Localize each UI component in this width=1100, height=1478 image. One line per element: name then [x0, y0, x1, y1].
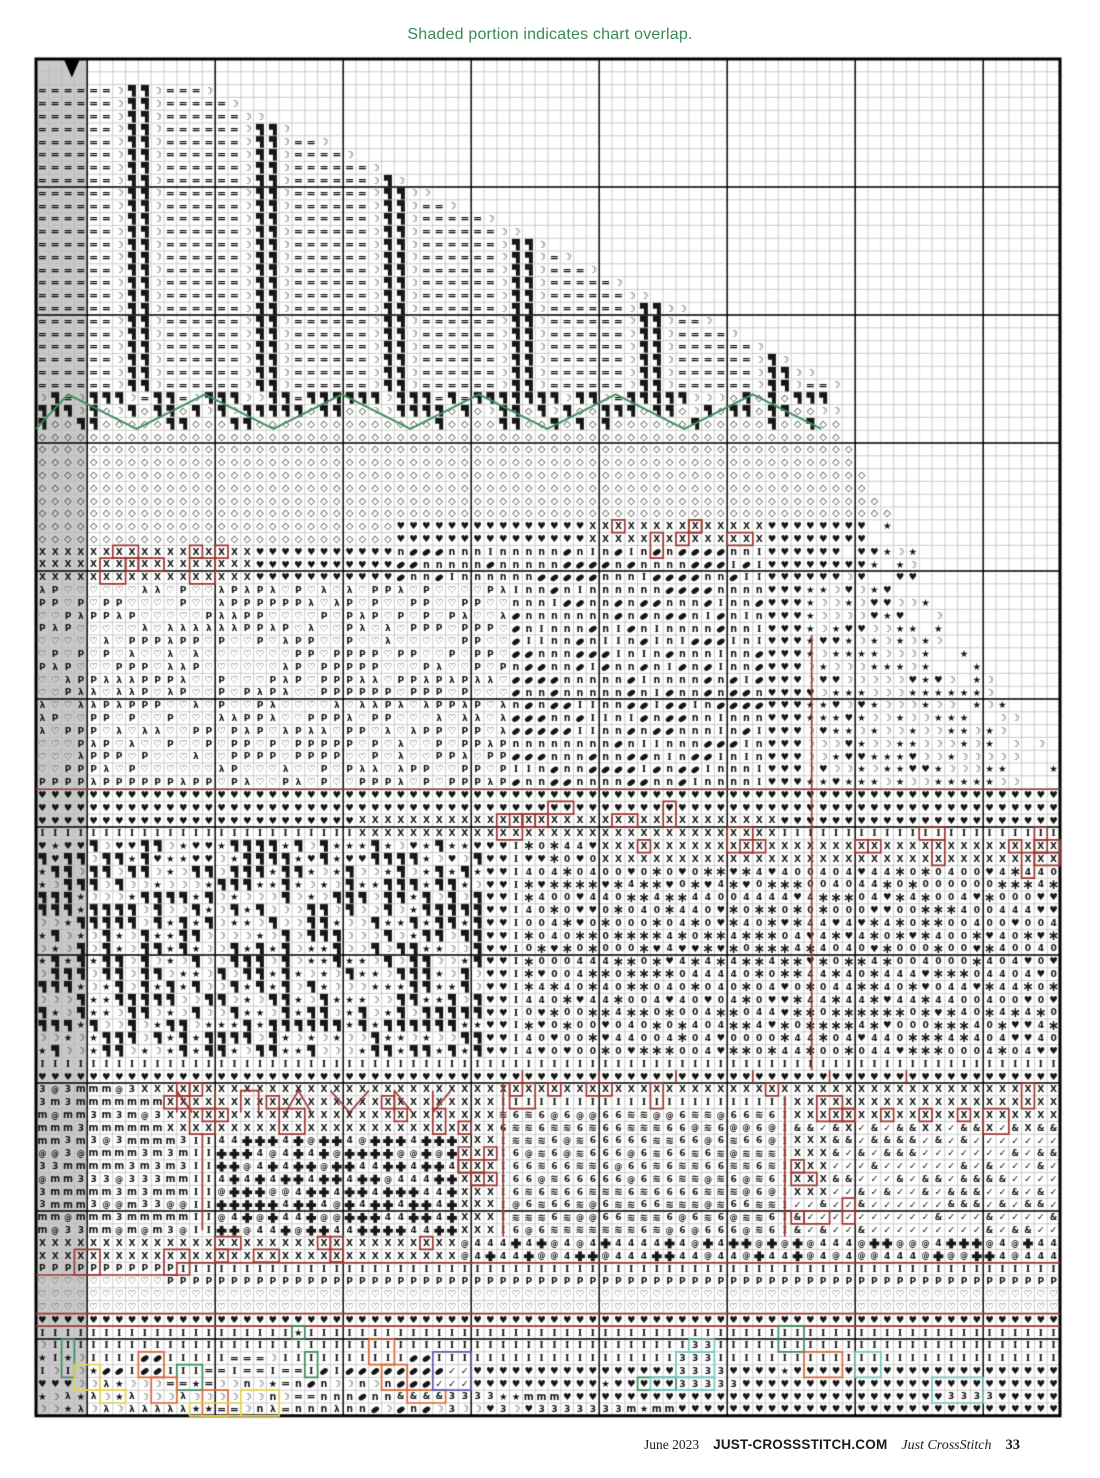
footer-issue-date: June 2023	[644, 1437, 699, 1453]
footer-page-number: 33	[1006, 1437, 1021, 1454]
chart-wrap	[33, 56, 1064, 1420]
footer-website: JUST-CROSSSTITCH.COM	[713, 1437, 887, 1452]
stitch-chart-grid	[33, 56, 1064, 1420]
footer-magazine-title: Just CrossStitch	[901, 1438, 991, 1454]
overlap-note: Shaded portion indicates chart overlap.	[0, 26, 1100, 44]
page-footer: June 2023 JUST-CROSSSTITCH.COM Just Cros…	[644, 1437, 1020, 1454]
magazine-page: Shaded portion indicates chart overlap. …	[0, 0, 1100, 1478]
